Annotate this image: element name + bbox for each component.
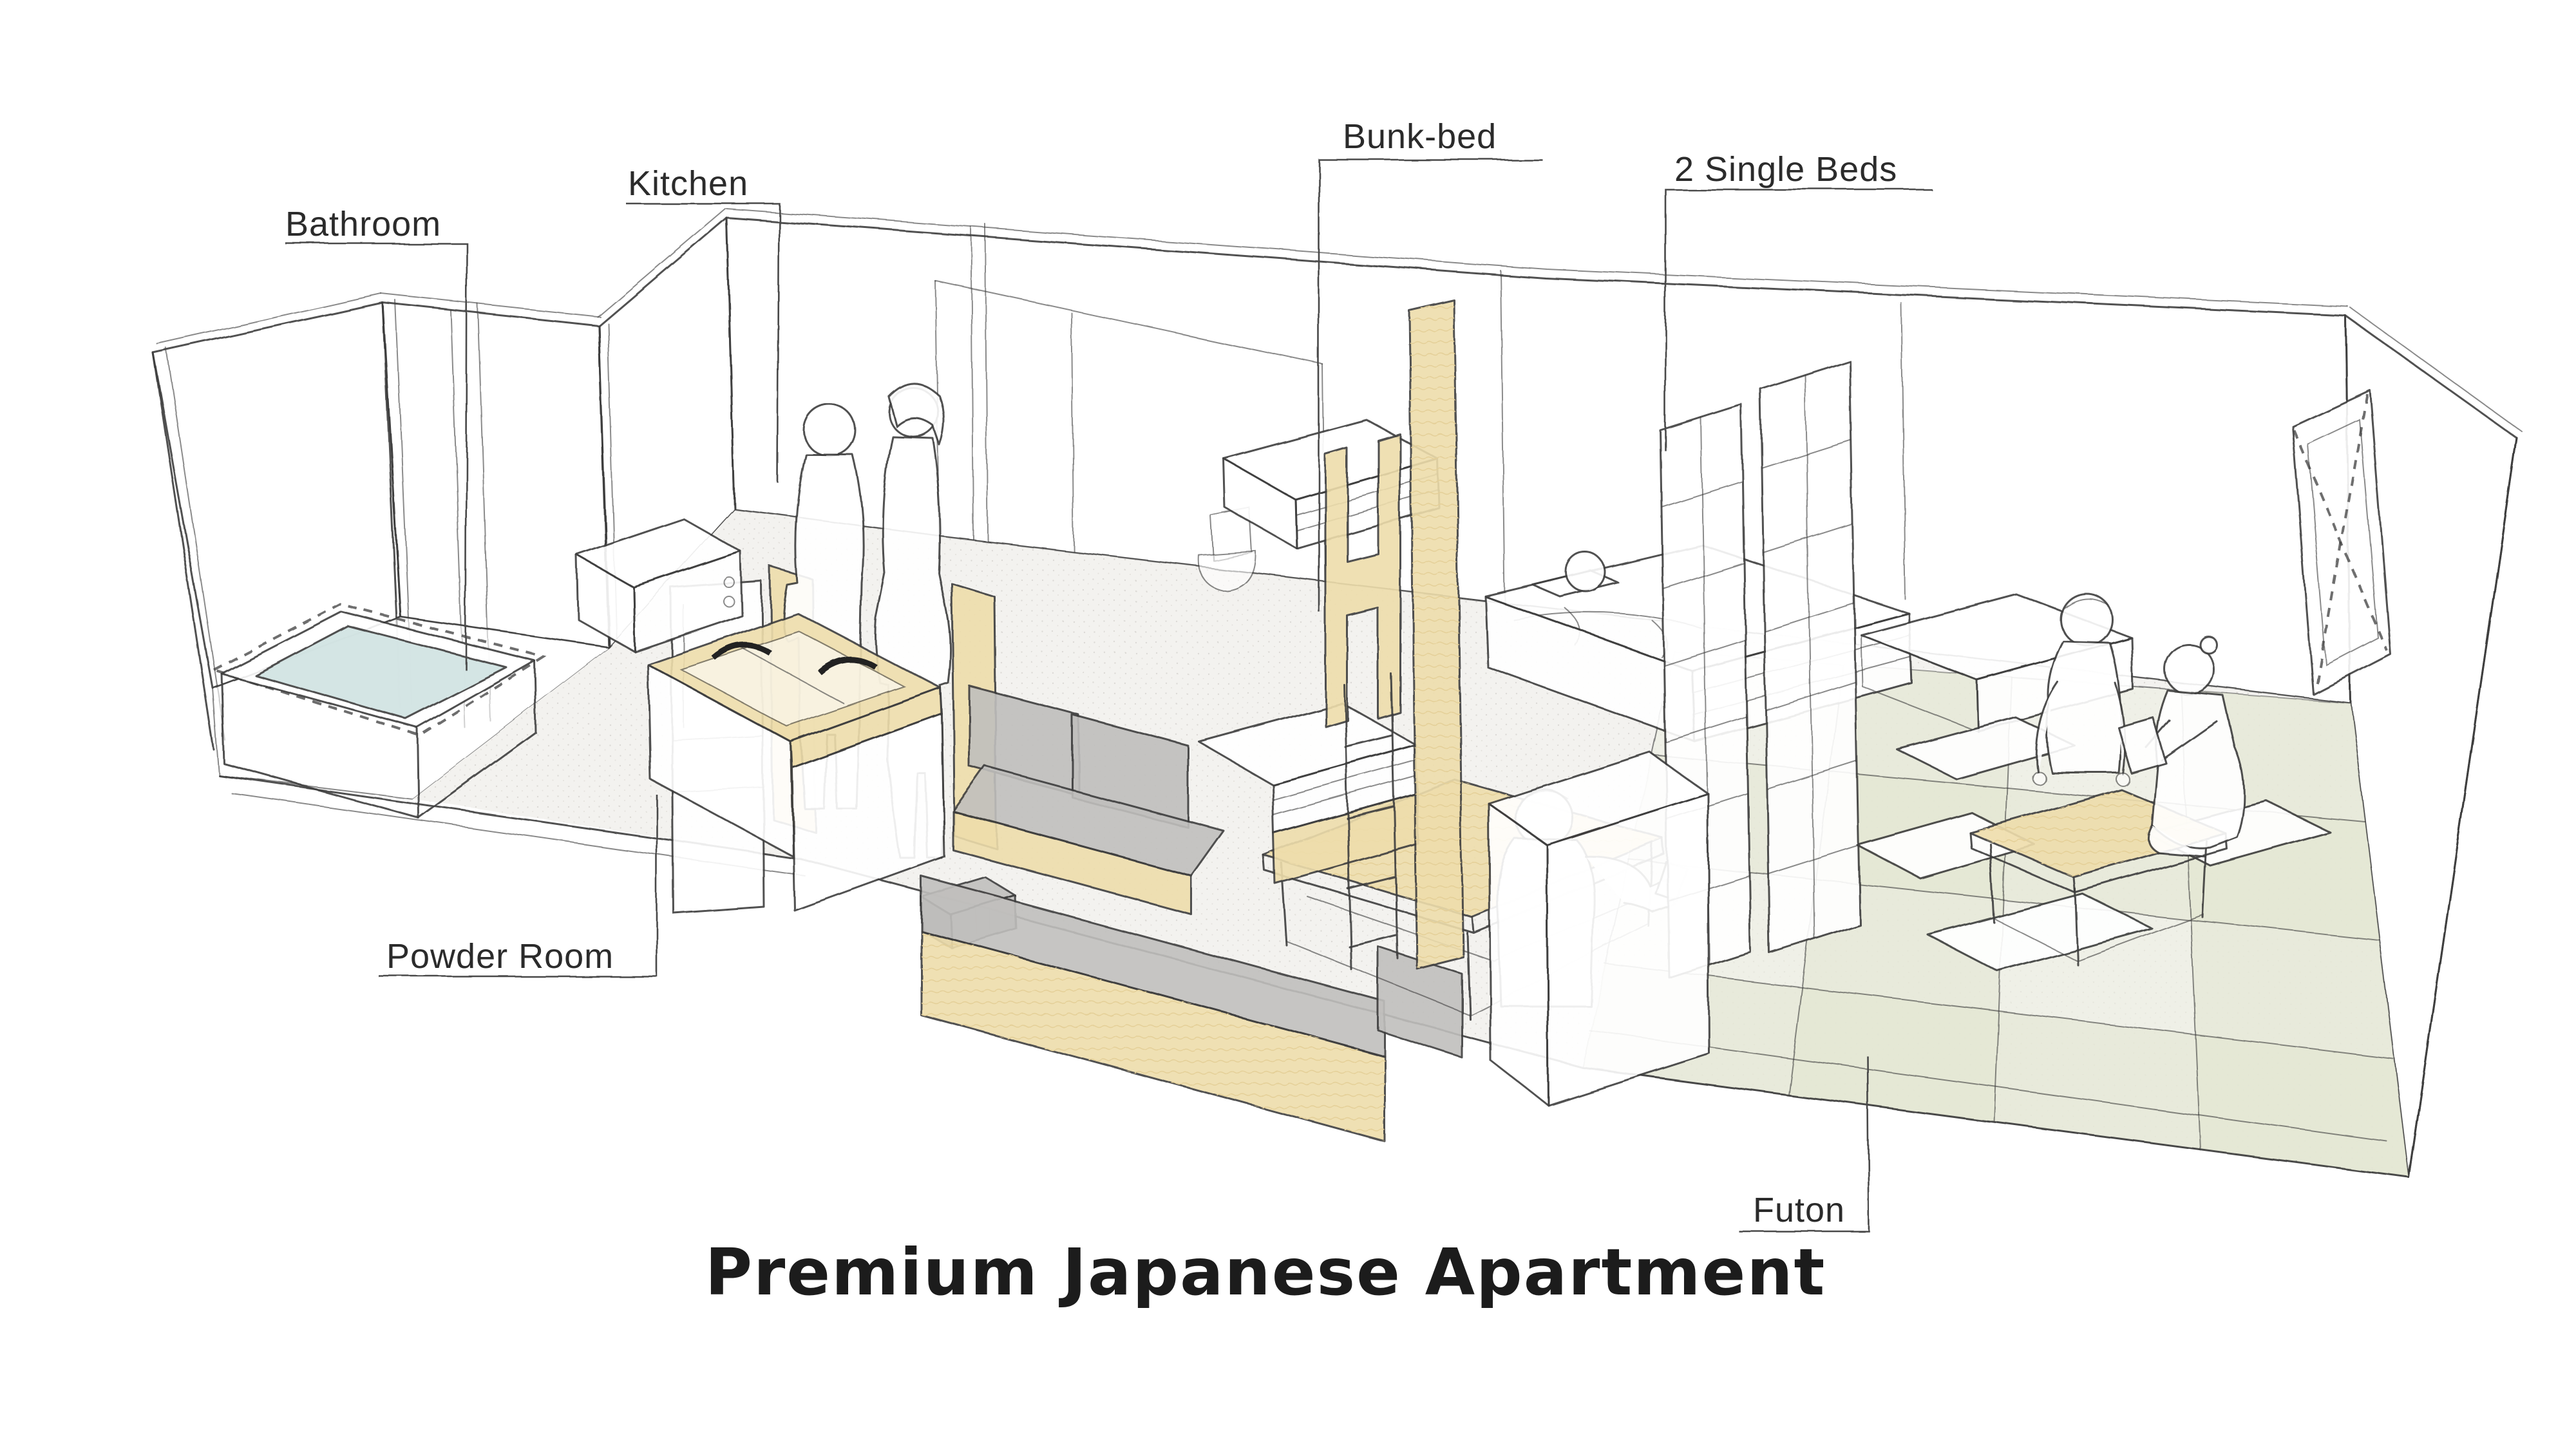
label-bathroom: Bathroom: [285, 205, 441, 243]
label-bunk-bed: Bunk-bed: [1343, 117, 1497, 156]
label-2-single-beds: 2 Single Beds: [1674, 150, 1897, 189]
apartment-sketch: Bathroom Kitchen Bunk-bed 2 Single Beds …: [0, 0, 2576, 1449]
label-futon: Futon: [1753, 1191, 1845, 1229]
sketch-page: Bathroom Kitchen Bunk-bed 2 Single Beds …: [0, 0, 2576, 1449]
page-title: Premium Japanese Apartment: [705, 1235, 1826, 1310]
label-kitchen: Kitchen: [628, 164, 748, 203]
storage-box: [1489, 752, 1709, 1105]
label-powder-room: Powder Room: [386, 937, 614, 976]
